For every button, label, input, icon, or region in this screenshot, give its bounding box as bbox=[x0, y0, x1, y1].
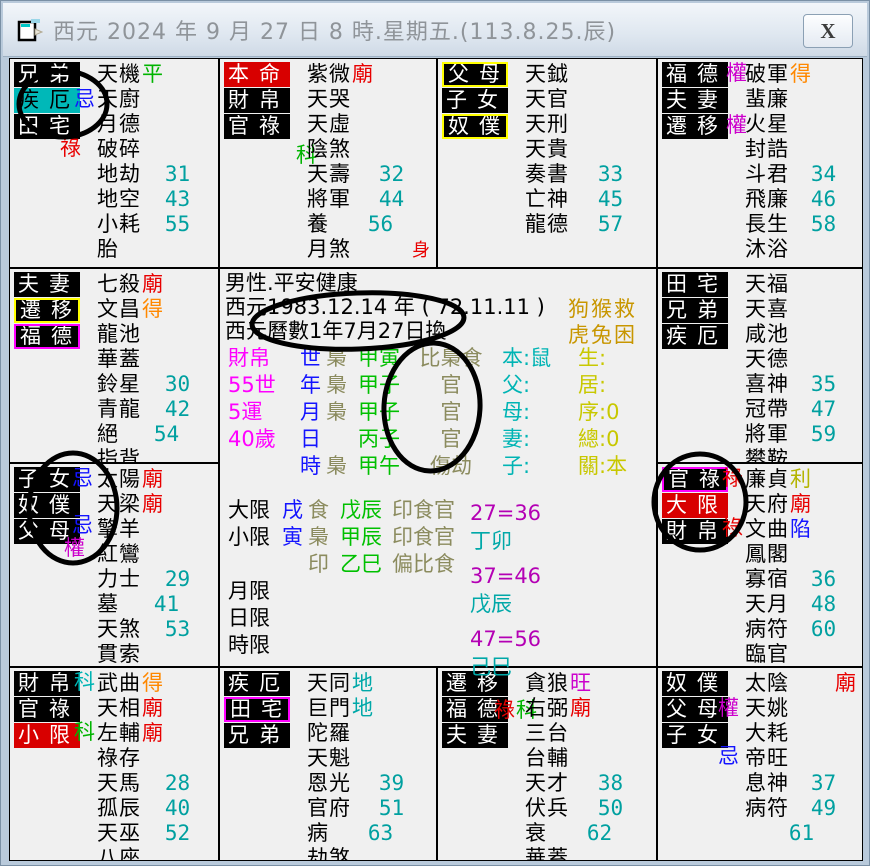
star-name: 華蓋 bbox=[97, 347, 141, 372]
star-name: 天魁 bbox=[307, 746, 351, 771]
star-row: 左輔廟 bbox=[97, 721, 213, 746]
limit-row: 月限 bbox=[220, 578, 455, 605]
star-name: 墓 bbox=[97, 592, 119, 617]
limit-tengods: 偏比食 bbox=[392, 551, 455, 578]
star-age: 60 bbox=[811, 617, 836, 642]
star-name: 長生 bbox=[745, 212, 789, 237]
pillar-key: 時 bbox=[300, 453, 326, 480]
star-name: 力士 bbox=[97, 567, 141, 592]
star-name: 天壽 bbox=[307, 162, 351, 187]
star-name: 天巫 bbox=[97, 821, 141, 846]
star-age: 40 bbox=[165, 796, 190, 821]
palace-cell-chen[interactable]: 夫妻 遷移 福德 七殺廟文昌得龍池華蓋鈴星30青龍42絕54指背 bbox=[9, 268, 219, 463]
star-age: 59 bbox=[811, 422, 836, 447]
star-age: 28 bbox=[165, 771, 190, 796]
transform-ke: 科 bbox=[74, 720, 95, 744]
star-name: 斗君 bbox=[745, 162, 789, 187]
pillar-info: 關:本 bbox=[578, 453, 627, 480]
star-row: 貫索 bbox=[97, 642, 213, 667]
star-name: 封誥 bbox=[745, 137, 789, 162]
star-brightness: 地 bbox=[352, 696, 374, 721]
star-row: 天梁廟 bbox=[97, 492, 213, 517]
star-name: 恩光 bbox=[307, 771, 351, 796]
star-row: 天機平 bbox=[97, 62, 213, 87]
pillar-ganzhi: 甲午 bbox=[358, 453, 410, 480]
palace-cell-wei[interactable]: 父母 子女 奴僕 天鉞天官天刑天貴奏書33亡神45龍德57 bbox=[437, 58, 657, 268]
pillar-ganzhi: 甲子 bbox=[358, 372, 410, 399]
star-list: 天福天喜咸池天德喜神35冠帶47將軍59攀鞍 bbox=[745, 272, 857, 463]
palace-label: 夫妻 bbox=[14, 272, 80, 297]
star-age: 29 bbox=[165, 567, 190, 592]
star-brightness: 得 bbox=[142, 297, 164, 322]
star-row: 天才38 bbox=[525, 771, 651, 796]
limit-ganzhi-value: 戊辰 bbox=[470, 590, 541, 618]
star-list: 紫微廟天哭天虛陰煞天壽32將軍44養56月煞身 bbox=[307, 62, 431, 262]
star-brightness: 廟 bbox=[142, 696, 164, 721]
star-name: 衰 bbox=[525, 821, 547, 846]
star-list: 太陰廟天姚大耗帝旺息神37病符4961 bbox=[745, 671, 857, 846]
close-icon: X bbox=[820, 19, 835, 44]
star-row: 沐浴 bbox=[745, 237, 857, 262]
palace-cell-you[interactable]: 田宅 兄弟 疾厄 天福天喜咸池天德喜神35冠帶47將軍59攀鞍 bbox=[657, 268, 863, 463]
star-name: 官府 bbox=[307, 796, 351, 821]
star-row: 孤辰40 bbox=[97, 796, 213, 821]
star-row: 三台 bbox=[525, 721, 651, 746]
limit-row: 大限 戌 食 戊辰 印食官 bbox=[220, 497, 455, 524]
limit-age-range: 47=56 bbox=[470, 625, 541, 653]
palace-label: 兄弟 bbox=[662, 298, 728, 323]
palace-label: 夫妻 bbox=[662, 88, 728, 113]
limit-ganzhi bbox=[340, 578, 392, 605]
star-row: 恩光39 bbox=[307, 771, 431, 796]
palace-cell-hai[interactable]: 奴僕 父母 子女 權 忌 太陰廟天姚大耗帝旺息神37病符4961 bbox=[657, 667, 863, 861]
pillar-row-label: 財帛 bbox=[228, 345, 300, 372]
pillar-god bbox=[326, 426, 358, 453]
palace-label: 遷移 bbox=[14, 298, 80, 323]
palace-label: 兄弟 bbox=[14, 62, 80, 87]
close-button[interactable]: X bbox=[803, 14, 853, 48]
star-brightness: 旺 bbox=[570, 671, 592, 696]
star-name: 冠帶 bbox=[745, 397, 789, 422]
star-row: 右弼廟 bbox=[525, 696, 651, 721]
star-age: 61 bbox=[789, 821, 814, 846]
star-name: 天府 bbox=[745, 492, 789, 517]
window-title: 西元 2024 年 9 月 27 日 8 時.星期五.(113.8.25.辰) bbox=[53, 14, 616, 46]
star-row: 太陽廟 bbox=[97, 467, 213, 492]
star-name: 飛廉 bbox=[745, 187, 789, 212]
star-name: 右弼 bbox=[525, 696, 569, 721]
palace-label: 財帛 bbox=[224, 88, 290, 113]
pillar-god: 梟 bbox=[326, 453, 358, 480]
pillar-key: 月 bbox=[300, 399, 326, 426]
star-brightness: 廟 bbox=[142, 721, 164, 746]
pillar-relation: 母: bbox=[502, 399, 578, 426]
star-row: 飛廉46 bbox=[745, 187, 857, 212]
star-age: 57 bbox=[598, 212, 623, 237]
star-name: 天相 bbox=[97, 696, 141, 721]
pillar-relation: 父: bbox=[502, 372, 578, 399]
palace-cell-chou[interactable]: 疾厄 田宅 兄弟 天同地巨門地陀羅天魁恩光39官府51病63劫煞 bbox=[219, 667, 437, 861]
pillar-info: 生: bbox=[578, 345, 606, 372]
star-name: 破軍 bbox=[745, 62, 789, 87]
transform-ji: 忌 bbox=[718, 744, 739, 768]
limit-branch: 寅 bbox=[282, 524, 308, 551]
star-row: 文昌得 bbox=[97, 297, 213, 322]
palace-label: 財帛 bbox=[662, 519, 728, 544]
star-name: 地空 bbox=[97, 187, 141, 212]
star-name: 三台 bbox=[525, 721, 569, 746]
star-name: 孤辰 bbox=[97, 796, 141, 821]
star-name: 陀羅 bbox=[307, 721, 351, 746]
star-age: 42 bbox=[165, 397, 190, 422]
star-name: 陰煞 bbox=[307, 137, 351, 162]
star-name: 鳳閣 bbox=[745, 542, 789, 567]
transform-lu: 祿 bbox=[722, 466, 743, 490]
limit-ganzhi-value: 己巳 bbox=[470, 653, 541, 681]
star-name: 病符 bbox=[745, 617, 789, 642]
star-brightness: 廟 bbox=[142, 492, 164, 517]
star-name: 天鉞 bbox=[525, 62, 569, 87]
star-age: 32 bbox=[379, 162, 404, 187]
star-row: 天刑 bbox=[525, 112, 651, 137]
star-row: 墓41 bbox=[97, 592, 213, 617]
star-row: 將軍44 bbox=[307, 187, 431, 212]
star-name: 沐浴 bbox=[745, 237, 789, 262]
star-name: 天喜 bbox=[745, 297, 789, 322]
limit-ganzhi: 乙巳 bbox=[340, 551, 392, 578]
limit-ganzhi bbox=[340, 632, 392, 659]
star-name: 巨門 bbox=[307, 696, 351, 721]
star-row: 病符49 bbox=[745, 796, 857, 821]
star-row: 文曲陷 bbox=[745, 517, 857, 542]
star-row: 奏書33 bbox=[525, 162, 651, 187]
pillar-row: 55世 年 梟 甲子 官 父: 居: bbox=[220, 372, 656, 399]
limit-ganzhi bbox=[340, 605, 392, 632]
star-name: 七殺 bbox=[97, 272, 141, 297]
star-row: 武曲得 bbox=[97, 671, 213, 696]
limit-label: 時限 bbox=[228, 632, 282, 659]
star-name: 華蓋 bbox=[525, 846, 569, 861]
pillar-tengods: 官 bbox=[410, 399, 492, 426]
palace-label: 小限 bbox=[14, 723, 80, 748]
transform-ke: 科 bbox=[74, 670, 95, 694]
limit-row: 小限 寅 梟 甲辰 印食官 bbox=[220, 524, 455, 551]
star-name: 伏兵 bbox=[525, 796, 569, 821]
star-name: 火星 bbox=[745, 112, 789, 137]
star-name: 大耗 bbox=[745, 721, 789, 746]
palace-label: 田宅 bbox=[224, 697, 290, 722]
star-row: 擎羊 bbox=[97, 517, 213, 542]
star-row: 胎 bbox=[97, 237, 213, 262]
star-name: 龍池 bbox=[97, 322, 141, 347]
palace-label: 本命 bbox=[224, 62, 290, 87]
star-brightness: 地 bbox=[352, 671, 374, 696]
limit-age-range: 27=36 bbox=[470, 499, 541, 527]
star-list: 武曲得天相廟左輔廟祿存天馬28孤辰40天巫52八座 bbox=[97, 671, 213, 861]
star-row: 祿存 bbox=[97, 746, 213, 771]
star-name: 紅鸞 bbox=[97, 542, 141, 567]
star-age: 52 bbox=[165, 821, 190, 846]
palace-cell-xu[interactable]: 官祿 大限 財帛 祿 祿 廉貞利天府廟文曲陷鳳閣寡宿36天月48病符60臨官 bbox=[657, 463, 863, 667]
star-list: 七殺廟文昌得龍池華蓋鈴星30青龍42絕54指背 bbox=[97, 272, 213, 463]
star-row: 天廚 bbox=[97, 87, 213, 112]
window-icon[interactable] bbox=[15, 15, 45, 45]
limit-label: 大限 bbox=[228, 497, 282, 524]
star-name: 台輔 bbox=[525, 746, 569, 771]
star-row: 劫煞 bbox=[307, 846, 431, 861]
transform-quan: 權 bbox=[718, 696, 739, 720]
palace-label: 官祿 bbox=[14, 697, 80, 722]
star-name: 喜神 bbox=[745, 372, 789, 397]
limit-ganzhi: 甲辰 bbox=[340, 524, 392, 551]
pillar-god: 梟 bbox=[326, 399, 358, 426]
star-row: 天哭 bbox=[307, 87, 431, 112]
limit-row: 日限 bbox=[220, 605, 455, 632]
star-name: 紫微 bbox=[307, 62, 351, 87]
star-name: 太陽 bbox=[97, 467, 141, 492]
limits-ganzhi-list: 27=36 丁卯 37=46 戊辰 47=56 己巳 bbox=[470, 499, 541, 681]
star-row: 長生58 bbox=[745, 212, 857, 237]
star-row: 養56 bbox=[307, 212, 431, 237]
star-name: 太陰 bbox=[745, 671, 789, 696]
pillar-tengods: 官 bbox=[410, 426, 492, 453]
star-name: 文昌 bbox=[97, 297, 141, 322]
star-name: 天馬 bbox=[97, 771, 141, 796]
palace-cell-wu[interactable]: 本命 財帛 官祿 科 紫微廟天哭天虛陰煞天壽32將軍44養56月煞身 bbox=[219, 58, 437, 268]
pillar-god: 梟 bbox=[326, 372, 358, 399]
transform-lu: 祿 bbox=[494, 698, 515, 722]
star-age: 62 bbox=[587, 821, 612, 846]
limit-god bbox=[308, 578, 340, 605]
star-list: 太陽廟天梁廟擎羊紅鸞力士29墓41天煞53貫索 bbox=[97, 467, 213, 667]
limit-branch bbox=[282, 605, 308, 632]
star-name: 小耗 bbox=[97, 212, 141, 237]
star-age: 39 bbox=[379, 771, 404, 796]
limits-table: 大限 戌 食 戊辰 印食官 小限 寅 梟 甲辰 印食官 印 乙巳 偏比食 bbox=[220, 497, 455, 659]
star-age: 31 bbox=[165, 162, 190, 187]
star-row: 封誥 bbox=[745, 137, 857, 162]
star-name: 破碎 bbox=[97, 137, 141, 162]
transform-quan: 權 bbox=[726, 113, 747, 137]
star-brightness: 廟 bbox=[570, 696, 592, 721]
star-row: 天喜 bbox=[745, 297, 857, 322]
star-name: 養 bbox=[307, 212, 329, 237]
palace-cell-shen[interactable]: 福德 夫妻 遷移 權 權 破軍得蜚廉火星封誥斗君34飛廉46長生58沐浴 bbox=[657, 58, 863, 268]
pillar-tengods: 傷劫 bbox=[410, 453, 492, 480]
pillars-table: 財帛 世 梟 甲寅 比梟食 本:鼠 生: 55世 年 梟 甲子 官 父: 居: … bbox=[220, 345, 656, 480]
zodiac-note-line: 狗猴救 bbox=[568, 296, 637, 322]
limit-god bbox=[308, 632, 340, 659]
star-name: 鈴星 bbox=[97, 372, 141, 397]
star-age: 36 bbox=[811, 567, 836, 592]
palace-cell-yin[interactable]: 財帛 官祿 小限 科 科 武曲得天相廟左輔廟祿存天馬28孤辰40天巫52八座 bbox=[9, 667, 219, 861]
palace-cell-zi[interactable]: 遷移 福德 夫妻 祿 科 貪狼旺右弼廟三台台輔天才38伏兵50衰62華蓋 bbox=[437, 667, 657, 861]
star-row: 鳳閣 bbox=[745, 542, 857, 567]
star-brightness: 陷 bbox=[790, 517, 812, 542]
star-row: 華蓋 bbox=[97, 347, 213, 372]
palace-label: 疾厄 bbox=[224, 671, 290, 696]
star-name: 天刑 bbox=[525, 112, 569, 137]
star-row: 天德 bbox=[745, 347, 857, 372]
pillar-ganzhi: 甲子 bbox=[358, 399, 410, 426]
star-row: 帝旺 bbox=[745, 746, 857, 771]
palace-label: 奴僕 bbox=[14, 493, 80, 518]
star-age: 45 bbox=[598, 187, 623, 212]
star-brightness: 得 bbox=[142, 671, 164, 696]
palace-label: 遷移 bbox=[662, 114, 728, 139]
star-name: 貫索 bbox=[97, 642, 141, 667]
star-row: 紫微廟 bbox=[307, 62, 431, 87]
star-row: 衰62 bbox=[525, 821, 651, 846]
star-row: 天同地 bbox=[307, 671, 431, 696]
star-row: 伏兵50 bbox=[525, 796, 651, 821]
pillar-row-label: 55世 bbox=[228, 372, 300, 399]
star-name: 天才 bbox=[525, 771, 569, 796]
chart-grid: 兄弟 疾厄 田宅 忌 祿 天機平天廚月德破碎地劫31地空43小耗55胎 本命 財… bbox=[9, 58, 863, 861]
star-row: 天府廟 bbox=[745, 492, 857, 517]
star-tail: 身 bbox=[412, 242, 431, 262]
pillar-info: 居: bbox=[578, 372, 606, 399]
star-row: 青龍42 bbox=[97, 397, 213, 422]
star-row: 貪狼旺 bbox=[525, 671, 651, 696]
limit-label: 小限 bbox=[228, 524, 282, 551]
palace-cell-mao[interactable]: 子女 奴僕 父母 忌 忌 權 太陽廟天梁廟擎羊紅鸞力士29墓41天煞53貫索 bbox=[9, 463, 219, 667]
title-bar: 西元 2024 年 9 月 27 日 8 時.星期五.(113.8.25.辰) … bbox=[3, 3, 867, 57]
star-name: 息神 bbox=[745, 771, 789, 796]
star-row: 破軍得 bbox=[745, 62, 857, 87]
star-list: 天同地巨門地陀羅天魁恩光39官府51病63劫煞 bbox=[307, 671, 431, 861]
star-name: 奏書 bbox=[525, 162, 569, 187]
star-age: 41 bbox=[154, 592, 179, 617]
star-row: 天鉞 bbox=[525, 62, 651, 87]
limit-row: 時限 bbox=[220, 632, 455, 659]
star-age: 46 bbox=[811, 187, 836, 212]
star-row: 息神37 bbox=[745, 771, 857, 796]
star-row: 力士29 bbox=[97, 567, 213, 592]
pillar-relation: 子: bbox=[502, 453, 578, 480]
star-name: 龍德 bbox=[525, 212, 569, 237]
star-row: 八座 bbox=[97, 846, 213, 861]
star-row: 破碎 bbox=[97, 137, 213, 162]
star-name: 天福 bbox=[745, 272, 789, 297]
star-name: 絕 bbox=[97, 422, 119, 447]
star-name: 月煞 bbox=[307, 237, 351, 262]
star-name: 天姚 bbox=[745, 696, 789, 721]
limit-tengods: 印食官 bbox=[392, 497, 455, 524]
limit-god: 印 bbox=[308, 551, 340, 578]
subject-line: 男性.平安健康 bbox=[225, 271, 358, 295]
star-row: 火星 bbox=[745, 112, 857, 137]
star-age: 49 bbox=[811, 796, 836, 821]
pillar-relation: 本:鼠 bbox=[502, 345, 578, 372]
pillar-ganzhi: 丙子 bbox=[358, 426, 410, 453]
star-row: 冠帶47 bbox=[745, 397, 857, 422]
limit-row: 印 乙巳 偏比食 bbox=[220, 551, 455, 578]
star-row: 巨門地 bbox=[307, 696, 431, 721]
palace-label: 田宅 bbox=[662, 272, 728, 297]
star-name: 臨官 bbox=[745, 642, 789, 667]
star-age: 58 bbox=[811, 212, 836, 237]
star-age: 38 bbox=[598, 771, 623, 796]
star-row: 大耗 bbox=[745, 721, 857, 746]
star-name: 祿存 bbox=[97, 746, 141, 771]
transform-ji: 忌 bbox=[74, 87, 95, 111]
star-brightness: 廟 bbox=[142, 272, 164, 297]
pillar-row-label: 40歲 bbox=[228, 426, 300, 453]
star-age: 56 bbox=[368, 212, 393, 237]
limit-tengods: 印食官 bbox=[392, 524, 455, 551]
star-row: 寡宿36 bbox=[745, 567, 857, 592]
palace-cell-si[interactable]: 兄弟 疾厄 田宅 忌 祿 天機平天廚月德破碎地劫31地空43小耗55胎 bbox=[9, 58, 219, 268]
pillar-key: 日 bbox=[300, 426, 326, 453]
limit-branch bbox=[282, 551, 308, 578]
star-name: 將軍 bbox=[307, 187, 351, 212]
star-name: 擎羊 bbox=[97, 517, 141, 542]
palace-label: 子女 bbox=[14, 467, 80, 492]
app-window: 西元 2024 年 9 月 27 日 8 時.星期五.(113.8.25.辰) … bbox=[0, 0, 870, 866]
star-name: 病 bbox=[307, 821, 329, 846]
star-brightness: 廟 bbox=[142, 467, 164, 492]
star-name: 廉貞 bbox=[745, 467, 789, 492]
star-row: 天魁 bbox=[307, 746, 431, 771]
palace-label: 大限 bbox=[662, 493, 728, 518]
star-age: 33 bbox=[598, 162, 623, 187]
transform-lu: 祿 bbox=[722, 516, 743, 540]
pillar-tengods: 官 bbox=[410, 372, 492, 399]
star-row: 官府51 bbox=[307, 796, 431, 821]
star-age: 34 bbox=[811, 162, 836, 187]
star-age: 47 bbox=[811, 397, 836, 422]
star-brightness: 利 bbox=[790, 467, 812, 492]
star-age: 43 bbox=[165, 187, 190, 212]
star-row: 地空43 bbox=[97, 187, 213, 212]
star-name: 天德 bbox=[745, 347, 789, 372]
pillar-row: 5運 月 梟 甲子 官 母: 序:0 bbox=[220, 399, 656, 426]
limit-god: 梟 bbox=[308, 524, 340, 551]
star-name: 天同 bbox=[307, 671, 351, 696]
star-name: 天機 bbox=[97, 62, 141, 87]
star-name: 胎 bbox=[97, 237, 119, 262]
star-age: 53 bbox=[165, 617, 190, 642]
star-name: 天虛 bbox=[307, 112, 351, 137]
star-row: 陰煞 bbox=[307, 137, 431, 162]
limit-branch bbox=[282, 578, 308, 605]
star-name: 天廚 bbox=[97, 87, 141, 112]
star-row: 臨官 bbox=[745, 642, 857, 667]
star-name: 指背 bbox=[97, 447, 141, 463]
star-row: 紅鸞 bbox=[97, 542, 213, 567]
star-row: 台輔 bbox=[525, 746, 651, 771]
star-name: 天官 bbox=[525, 87, 569, 112]
star-name: 青龍 bbox=[97, 397, 141, 422]
star-row: 將軍59 bbox=[745, 422, 857, 447]
limit-label: 日限 bbox=[228, 605, 282, 632]
star-row: 月煞身 bbox=[307, 237, 431, 262]
star-row: 鈴星30 bbox=[97, 372, 213, 397]
star-row: 斗君34 bbox=[745, 162, 857, 187]
limit-label: 月限 bbox=[228, 578, 282, 605]
star-row: 咸池 bbox=[745, 322, 857, 347]
transform-ji: 忌 bbox=[72, 513, 93, 537]
palace-label: 財帛 bbox=[14, 671, 80, 696]
star-name: 左輔 bbox=[97, 721, 141, 746]
star-name: 文曲 bbox=[745, 517, 789, 542]
star-row: 陀羅 bbox=[307, 721, 431, 746]
star-brightness: 平 bbox=[142, 62, 164, 87]
star-name: 寡宿 bbox=[745, 567, 789, 592]
star-row: 華蓋 bbox=[525, 846, 651, 861]
star-list: 廉貞利天府廟文曲陷鳳閣寡宿36天月48病符60臨官 bbox=[745, 467, 857, 667]
